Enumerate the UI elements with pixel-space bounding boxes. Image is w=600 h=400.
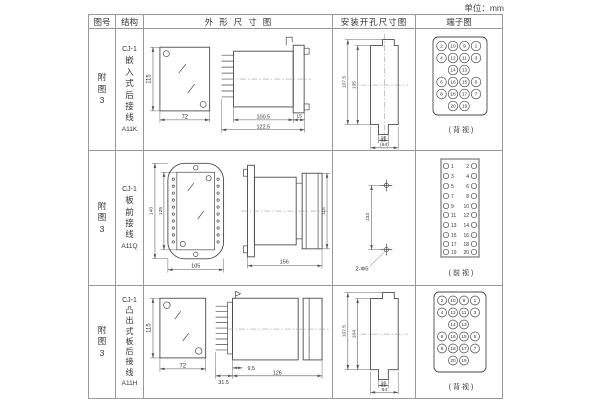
terminal-number: 15 xyxy=(462,79,468,85)
terminal-number: 8 xyxy=(441,346,444,352)
terminal-number: 9 xyxy=(463,298,466,304)
structure-name: 板前接线 xyxy=(125,195,134,241)
dim-label: 115 xyxy=(321,206,327,214)
terminal-number: 1 xyxy=(451,163,454,169)
structure-code: A11H xyxy=(122,380,138,387)
terminal-number: 18 xyxy=(450,346,456,352)
terminal-number: 15 xyxy=(461,334,467,340)
unit-label: 单位：mm xyxy=(0,2,504,14)
dim-label: 133 xyxy=(365,212,371,220)
terminal-number: 3 xyxy=(451,173,454,179)
terminal-number: 19 xyxy=(461,358,467,364)
header-fig-no: 图号 xyxy=(89,15,116,29)
dim-label: 105 xyxy=(191,263,200,269)
header-outline: 外形尺寸图 xyxy=(144,15,333,29)
terminal-number: 13 xyxy=(451,222,457,228)
terminal-number: 2 xyxy=(441,298,444,304)
terminal-number: 6 xyxy=(466,183,469,189)
row2-fig-no: 附图3 xyxy=(89,151,116,286)
terminal-number: 16 xyxy=(450,79,456,85)
terminal-number: 14 xyxy=(450,322,456,328)
terminal-number: 14 xyxy=(463,222,469,228)
mounting-drawing-a11q: 133 2-Φ5 xyxy=(333,151,415,286)
terminal-number: 4 xyxy=(440,55,443,61)
header-structure: 结构 xyxy=(116,15,144,29)
dim-label: 16 xyxy=(381,134,387,140)
dim-label: 72 xyxy=(181,114,188,120)
structure-code: A11Q xyxy=(121,243,137,250)
terminal-number: 19 xyxy=(451,249,457,255)
dim-label: 9.5 xyxy=(247,366,255,372)
view-caption: (前视) xyxy=(449,268,476,277)
terminal-number: 11 xyxy=(462,55,467,61)
terminal-number: 1 xyxy=(474,298,477,304)
terminal-number: 5 xyxy=(475,79,478,85)
terminal-number: 10 xyxy=(463,203,469,209)
figure-number: 附图3 xyxy=(98,72,107,106)
terminal-number: 18 xyxy=(463,241,469,247)
terminal-number: 3 xyxy=(475,55,478,61)
terminal-number: 10 xyxy=(450,43,456,49)
terminal-number: 7 xyxy=(451,193,454,199)
dim-label: (64) xyxy=(380,141,389,147)
structure-model: CJ-1 xyxy=(122,186,137,193)
dim-label: 64 xyxy=(382,387,388,393)
dim-label: 156 xyxy=(280,259,289,265)
dim-label: 126 xyxy=(273,370,282,376)
terminal-number: 16 xyxy=(463,232,469,238)
dim-label: 72 xyxy=(179,363,186,369)
structure-model: CJ-1 xyxy=(122,46,137,53)
terminal-diagram-a11k: 2 10 9 1 4 12 11 3 14 13 6 16 15 5 8 18 … xyxy=(416,29,502,151)
terminal-number: 6 xyxy=(440,79,443,85)
terminal-number: 15 xyxy=(451,232,457,238)
terminal-number: 19 xyxy=(462,103,468,109)
mounting-drawing-a11k: 107.5 105 16 (64) xyxy=(333,29,415,151)
dim-label: 104 xyxy=(352,330,358,338)
terminal-number: 6 xyxy=(441,334,444,340)
terminal-number: 2 xyxy=(440,43,443,49)
outline-drawing-a11k: 115 72 100.5 15 122.5 xyxy=(144,29,332,151)
row3-fig-no: 附图3 xyxy=(89,286,116,398)
structure-model: CJ-1 xyxy=(122,297,137,304)
row3-structure: CJ-1 凸出式板后接线 A11H xyxy=(116,286,144,398)
dim-label: 15 xyxy=(296,113,302,119)
terminal-number: 18 xyxy=(450,91,456,97)
terminal-number: 10 xyxy=(450,298,456,304)
view-caption: (背视) xyxy=(449,125,476,134)
dim-label: 2-Φ5 xyxy=(355,266,369,272)
dim-label: 100.5 xyxy=(257,114,271,120)
terminal-number: 4 xyxy=(441,310,444,316)
dim-label: 115 xyxy=(146,323,152,333)
terminal-number: 5 xyxy=(474,334,477,340)
row2-terminal-cell: 1 3 5 7 9 11 13 15 17 19 2 4 6 8 10 12 1… xyxy=(416,151,502,286)
header-mounting: 安装开孔尺寸图 xyxy=(333,15,416,29)
outline-drawing-a11h: 115 72 9.5 31.5 126 xyxy=(144,286,332,398)
terminal-number: 12 xyxy=(450,55,456,61)
dim-label: 16 xyxy=(381,380,387,386)
structure-code: A11K xyxy=(122,126,137,133)
terminal-number: 12 xyxy=(463,212,469,218)
row2-outline-cell: 140 125 105 156 115 xyxy=(144,151,333,286)
dim-label: 107.5 xyxy=(341,75,347,88)
structure-name: 凸出式板后接线 xyxy=(126,306,134,378)
terminal-number: 14 xyxy=(450,67,456,73)
terminal-number: 2 xyxy=(466,163,469,169)
terminal-number: 13 xyxy=(461,322,467,328)
dim-label: 122.5 xyxy=(257,124,271,130)
terminal-number: 11 xyxy=(462,310,467,316)
terminal-number: 8 xyxy=(466,193,469,199)
dim-label: 125 xyxy=(158,206,164,215)
terminal-number: 1 xyxy=(475,43,478,49)
dim-label: 105 xyxy=(352,80,358,88)
header-terminal: 端子图 xyxy=(416,15,502,29)
row1-mounting-cell: 107.5 105 16 (64) xyxy=(333,29,416,151)
row3-outline-cell: 115 72 9.5 31.5 126 xyxy=(144,286,333,398)
row1-fig-no: 附图3 xyxy=(89,29,116,151)
row1-structure: CJ-1 嵌入式后接线 A11K xyxy=(116,29,144,151)
terminal-number: 20 xyxy=(450,358,456,364)
terminal-number: 4 xyxy=(466,173,469,179)
structure-name: 嵌入式后接线 xyxy=(125,55,134,124)
row1-terminal-cell: 2 10 9 1 4 12 11 3 14 13 6 16 15 5 8 18 … xyxy=(416,29,502,151)
row2-structure: CJ-1 板前接线 A11Q xyxy=(116,151,144,286)
dim-label: 107.5 xyxy=(341,325,347,338)
figure-number: 附图3 xyxy=(98,201,107,235)
terminal-number: 17 xyxy=(461,346,467,352)
terminal-diagram-a11h: 2 10 9 1 4 12 11 3 14 13 6 16 15 5 8 18 … xyxy=(416,286,502,398)
terminal-number: 7 xyxy=(474,346,477,352)
terminal-number: 20 xyxy=(463,249,469,255)
terminal-number: 17 xyxy=(462,91,468,97)
terminal-number: 16 xyxy=(450,334,456,340)
terminal-diagram-a11q: 1 3 5 7 9 11 13 15 17 19 2 4 6 8 10 12 1… xyxy=(416,151,502,286)
terminal-number: 20 xyxy=(450,103,456,109)
spec-table: 图号 结构 外形尺寸图 安装开孔尺寸图 端子图 附图3 CJ-1 嵌入式后接线 … xyxy=(88,14,503,399)
view-caption: (背视) xyxy=(449,382,476,391)
terminal-number: 13 xyxy=(462,67,468,73)
terminal-number: 8 xyxy=(440,91,443,97)
row1-outline-cell: 115 72 100.5 15 122.5 xyxy=(144,29,333,151)
terminal-number: 12 xyxy=(450,310,456,316)
row3-terminal-cell: 2 10 9 1 4 12 11 3 14 13 6 16 15 5 8 18 … xyxy=(416,286,502,398)
terminal-number: 3 xyxy=(474,310,477,316)
row3-mounting-cell: 107.5 104 16 64 xyxy=(333,286,416,398)
terminal-number: 5 xyxy=(451,183,454,189)
dim-label: 115 xyxy=(146,73,152,83)
terminal-number: 9 xyxy=(463,43,466,49)
row2-mounting-cell: 133 2-Φ5 xyxy=(333,151,416,286)
mounting-drawing-a11h: 107.5 104 16 64 xyxy=(333,286,415,398)
outline-drawing-a11q: 140 125 105 156 115 xyxy=(144,151,332,286)
terminal-number: 17 xyxy=(451,241,457,247)
terminal-number: 11 xyxy=(451,212,456,218)
terminal-number: 7 xyxy=(475,91,478,97)
figure-number: 附图3 xyxy=(98,325,107,359)
dim-label: 140 xyxy=(148,206,154,215)
terminal-number: 9 xyxy=(451,203,454,209)
dim-label: 31.5 xyxy=(218,380,229,386)
